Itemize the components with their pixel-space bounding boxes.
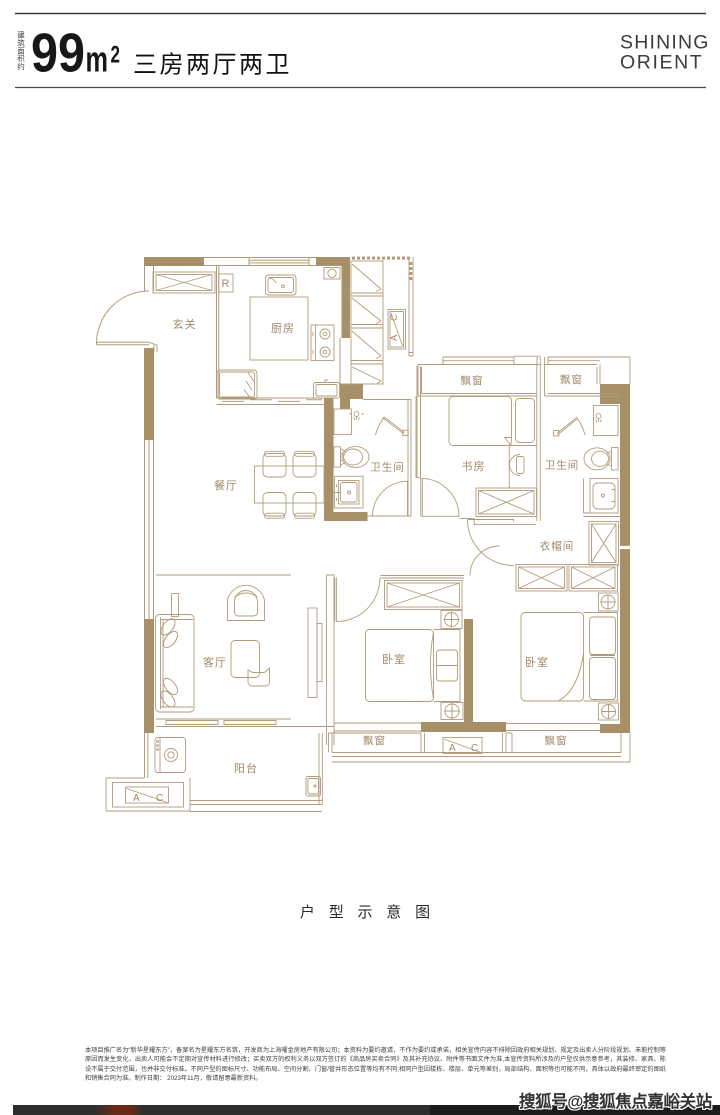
- svg-text:阳台: 阳台: [234, 761, 258, 775]
- svg-text:R: R: [222, 278, 231, 290]
- svg-text:99: 99: [31, 22, 85, 84]
- svg-text:衣帽间: 衣帽间: [540, 540, 575, 553]
- svg-text:C: C: [389, 314, 400, 321]
- svg-text:玄关: 玄关: [173, 317, 197, 331]
- svg-text:建筑面积约: 建筑面积约: [17, 30, 25, 72]
- svg-text:ORIENT: ORIENT: [620, 52, 703, 74]
- svg-text:C: C: [471, 743, 478, 754]
- svg-text:A: A: [133, 793, 140, 804]
- svg-text:SHINING: SHINING: [620, 32, 710, 54]
- svg-text:三房两厅两卫: 三房两厅两卫: [133, 52, 292, 79]
- svg-text:A: A: [389, 334, 400, 341]
- svg-text:飘窗: 飘窗: [560, 373, 583, 386]
- svg-text:m: m: [86, 39, 109, 80]
- svg-text:飘窗: 飘窗: [545, 734, 568, 747]
- svg-text:餐厅: 餐厅: [214, 478, 238, 492]
- svg-text:卧室: 卧室: [525, 655, 549, 669]
- svg-text:客厅: 客厅: [203, 655, 227, 669]
- svg-text:2: 2: [111, 42, 121, 69]
- svg-text:飘窗: 飘窗: [461, 374, 484, 387]
- svg-text:C: C: [156, 793, 163, 804]
- svg-text:厨房: 厨房: [271, 322, 295, 335]
- svg-text:飘窗: 飘窗: [363, 734, 386, 747]
- svg-text:书房: 书房: [462, 460, 486, 473]
- svg-text:卫生间: 卫生间: [370, 461, 405, 474]
- svg-text:A: A: [449, 743, 456, 754]
- svg-text:卧室: 卧室: [382, 652, 406, 666]
- svg-text:卫生间: 卫生间: [545, 459, 580, 472]
